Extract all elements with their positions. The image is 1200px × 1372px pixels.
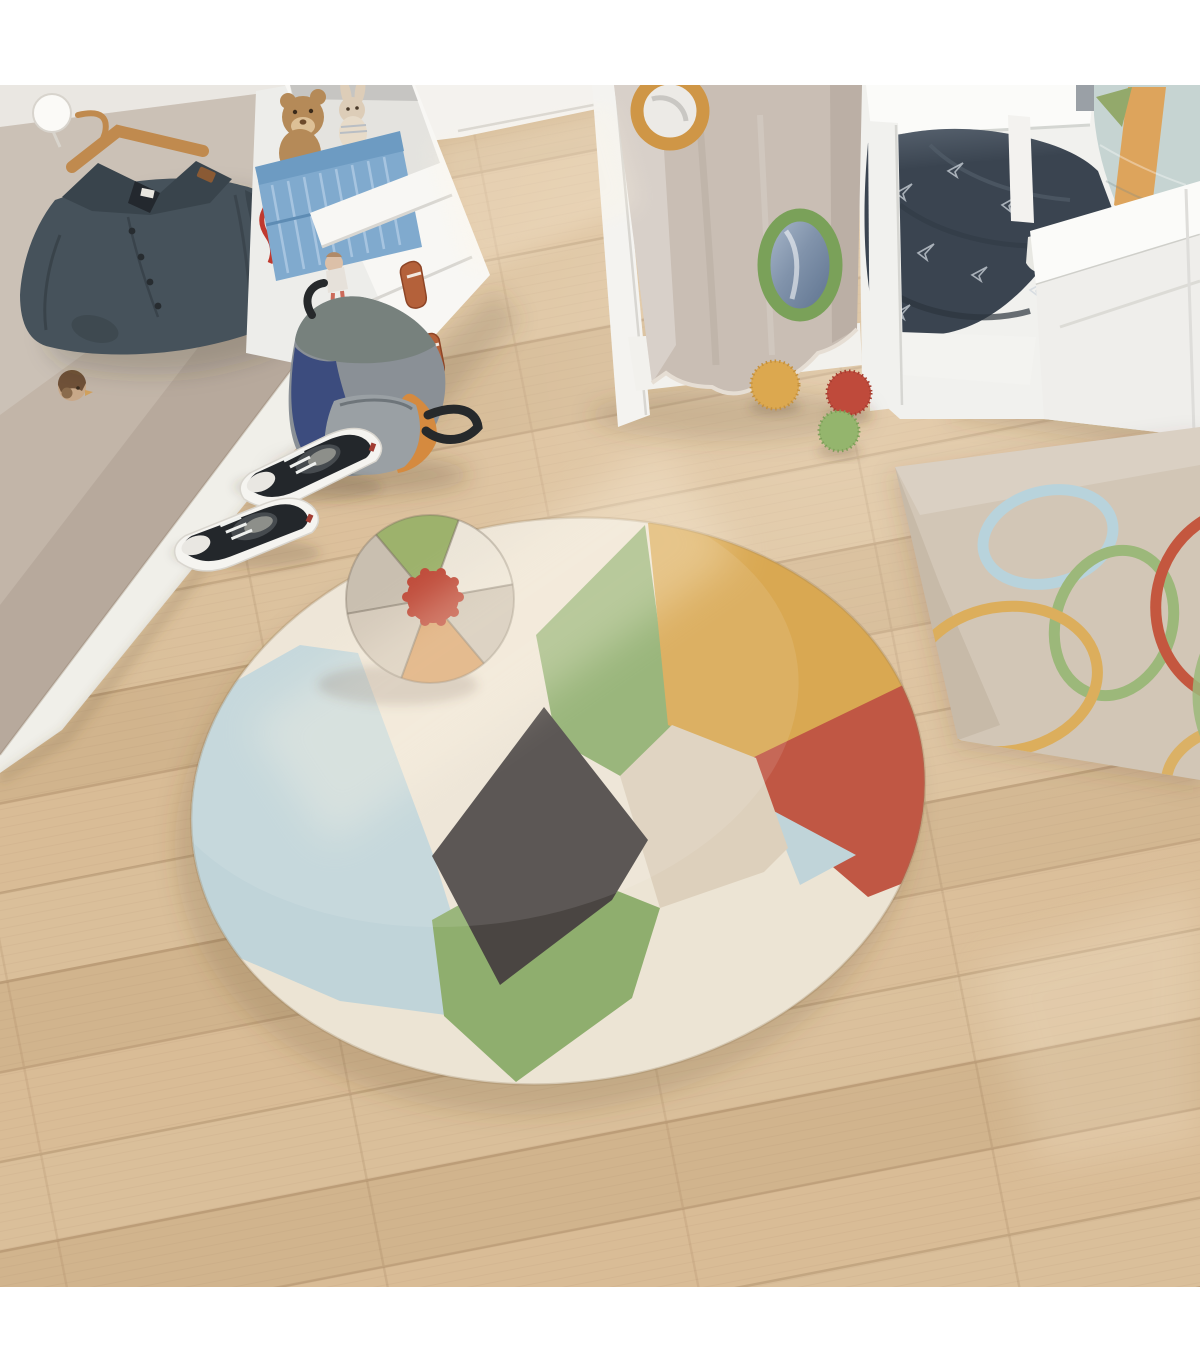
bed <box>858 85 1200 457</box>
screenshot-canvas <box>0 0 1200 1372</box>
room-photo <box>0 85 1200 1287</box>
headboard-gap <box>1076 85 1096 111</box>
pom-ball-green <box>819 411 859 451</box>
room-scene <box>0 85 1200 1287</box>
canopy-porthole-orange <box>637 85 703 144</box>
pom-ball-red <box>827 371 871 415</box>
canopy-porthole-green <box>764 215 836 315</box>
doll-dress <box>326 267 348 293</box>
pom-ball-yellow <box>751 361 799 409</box>
bed-guard-post <box>1008 115 1034 223</box>
knob-eye <box>76 386 80 390</box>
